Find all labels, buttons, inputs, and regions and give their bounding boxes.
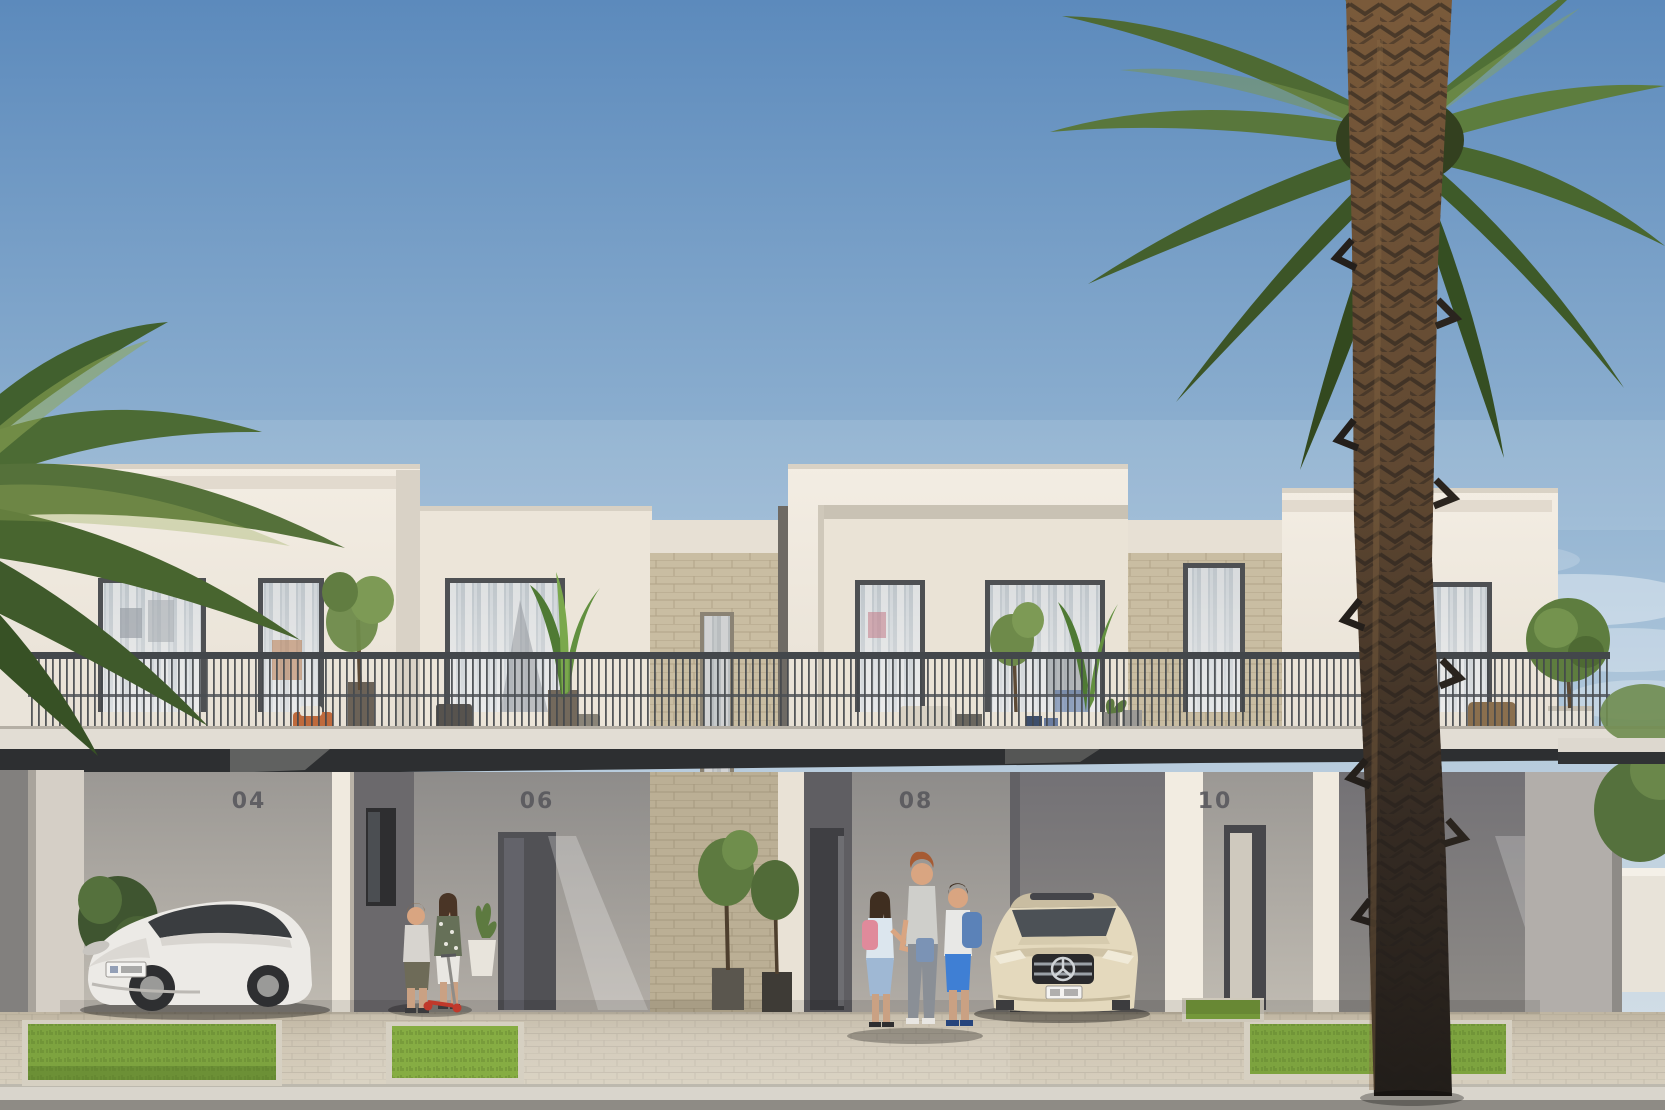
column-06-edge — [350, 772, 354, 1015]
unit-number-10: 10 — [1198, 789, 1233, 814]
column-10 — [1313, 772, 1339, 1015]
mercedes-windshield — [1012, 908, 1116, 937]
door-06-panel — [504, 838, 524, 1010]
mercedes-cowl — [1018, 936, 1110, 945]
unit-number-06: 06 — [520, 789, 555, 814]
left-pier — [28, 770, 84, 1015]
grass-strip-center — [386, 1022, 524, 1084]
mercedes-wheel-left — [996, 1000, 1014, 1010]
trunk-base-shadow — [1360, 1090, 1464, 1106]
right-canopy-continuation — [1558, 738, 1665, 764]
mother-bag — [916, 938, 934, 962]
left-end-wall — [0, 770, 28, 1015]
right-slab-face — [1558, 738, 1665, 752]
unit-number-04: 04 — [232, 789, 267, 814]
mercedes-wheel-right — [1112, 1000, 1130, 1010]
grass-strip-left — [22, 1020, 282, 1086]
right-slab-underside — [1558, 752, 1665, 764]
garden-wall-cap — [1622, 868, 1665, 876]
rendering-canvas: 04 06 08 10 — [0, 0, 1665, 1110]
family-shadow — [847, 1028, 983, 1044]
mercedes-sunroof — [1030, 893, 1094, 900]
slot-window-06-glass — [368, 812, 380, 902]
unit-number-08: 08 — [899, 789, 934, 814]
block-08-reveal-shadow — [822, 505, 1128, 519]
parapet-cap-06 — [420, 506, 652, 511]
left-pier-shade — [28, 770, 36, 1015]
parapet-cap-08 — [788, 464, 1128, 469]
door-08-glass-slot — [838, 836, 844, 1006]
garden-wall — [1622, 868, 1665, 992]
door-10-panel — [1230, 833, 1252, 1010]
